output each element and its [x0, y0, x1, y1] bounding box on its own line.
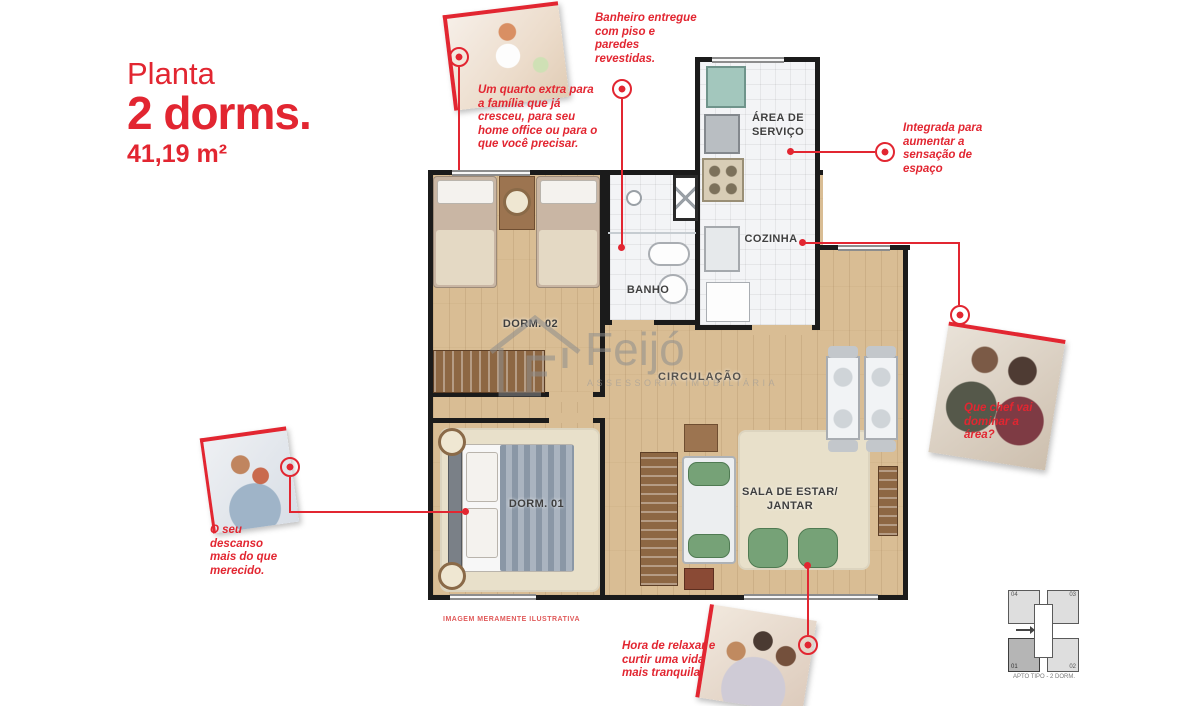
leader-line	[807, 567, 809, 635]
kitchen-sink	[704, 226, 740, 272]
leader-line	[802, 242, 960, 244]
storage-box	[684, 568, 714, 590]
toilet	[648, 242, 690, 266]
side-table	[684, 424, 718, 452]
leader-dot	[462, 508, 469, 515]
photo-couple-resting-in-bed	[200, 426, 300, 533]
dining-table	[826, 356, 860, 440]
room-label-service: ÁREA DE SERVIÇO	[746, 112, 810, 140]
callout-marker-bathroom	[612, 79, 632, 99]
dining-chair	[866, 346, 896, 358]
title-kicker: Planta	[127, 58, 311, 89]
leader-line	[289, 511, 465, 513]
laundry-tank	[704, 114, 740, 154]
annotation-kitchen: Que chef vai dominar a área?	[964, 402, 1050, 443]
bedroom1-window	[450, 594, 536, 600]
planta-marketing-page: Planta 2 dorms. 41,19 m²	[0, 0, 1200, 706]
pillow	[437, 180, 494, 204]
annotation-bedroom1: O seu descanso mais do que merecido.	[210, 524, 290, 578]
dining-chair	[866, 440, 896, 452]
keyplan-core	[1034, 604, 1053, 658]
lamp	[438, 428, 466, 456]
pillow	[540, 180, 597, 204]
room-label-living: SALA DE ESTAR/ JANTAR	[736, 486, 844, 514]
leader-line	[289, 477, 291, 513]
lamp	[438, 562, 466, 590]
shower-head	[626, 190, 642, 206]
kitchen-opening-gap	[752, 325, 812, 335]
leader-dot	[804, 562, 811, 569]
armchair-pouf	[748, 528, 788, 568]
annotation-service: Integrada para aumentar a sensação de es…	[903, 122, 995, 176]
dining-chair	[828, 346, 858, 358]
watermark-tagline: ASSESSORIA IMOBILIÁRIA	[587, 378, 778, 388]
blanket	[539, 230, 597, 285]
watermark-name: Feijó	[585, 322, 685, 376]
duct-shaft	[673, 175, 698, 221]
house-logo-icon	[485, 308, 581, 400]
bedroom1-door-gap	[549, 413, 593, 423]
leader-line	[458, 67, 460, 170]
leader-line	[621, 99, 623, 247]
pillow	[466, 508, 498, 558]
callout-marker-kitchen	[950, 305, 970, 325]
page-title-block: Planta 2 dorms. 41,19 m²	[127, 58, 311, 170]
service-window	[712, 57, 784, 63]
blanket	[436, 230, 494, 285]
plan-outside-mask	[823, 162, 913, 247]
room-label-kitchen: COZINHA	[738, 233, 804, 247]
armchair-pouf	[798, 528, 838, 568]
dining-chair	[828, 440, 858, 452]
leader-dot	[799, 239, 806, 246]
annotation-bedroom2: Um quarto extra para a família que já cr…	[478, 84, 602, 152]
fridge	[706, 282, 750, 322]
keyplan: 04 03 01 02 APTO TIPO - 2 DORM.	[1008, 590, 1080, 686]
leader-dot	[787, 148, 794, 155]
stove	[702, 158, 744, 202]
sofa-cushion	[688, 462, 730, 486]
sofa-cushion	[688, 534, 730, 558]
callout-marker-living	[798, 635, 818, 655]
leader-dot	[618, 244, 625, 251]
living-window	[744, 594, 878, 600]
apartment-area: 41,19 m²	[127, 139, 311, 170]
tv-rack	[878, 466, 898, 536]
page-title: 2 dorms.	[127, 89, 311, 139]
keyplan-unit-label: 01	[1011, 664, 1018, 670]
room-label-bedroom1: DORM. 01	[494, 498, 579, 512]
keyplan-access-arrow-icon	[1030, 626, 1035, 634]
annotation-living: Hora de relaxar e curtir uma vida mais t…	[622, 640, 716, 681]
keyplan-unit-label: 04	[1011, 592, 1018, 598]
annotation-bathroom: Banheiro entregue com piso e paredes rev…	[595, 12, 697, 66]
pillow	[466, 452, 498, 502]
disclaimer-text: IMAGEM MERAMENTE ILUSTRATIVA	[443, 616, 580, 623]
living-top-window	[838, 245, 890, 251]
callout-marker-bedroom2	[449, 47, 469, 67]
dining-table	[864, 356, 898, 440]
photo-couple-cooking	[928, 322, 1065, 471]
hall-closet	[640, 452, 678, 586]
leader-line	[790, 151, 875, 153]
lamp	[503, 188, 531, 216]
keyplan-unit-label: 03	[1069, 592, 1076, 598]
keyplan-unit-label: 02	[1069, 664, 1076, 670]
keyplan-caption: APTO TIPO - 2 DORM.	[1008, 674, 1080, 680]
callout-marker-service	[875, 142, 895, 162]
headboard	[448, 440, 462, 576]
washing-machine	[706, 66, 746, 108]
callout-marker-bedroom1	[280, 457, 300, 477]
room-label-bathroom: BANHO	[616, 284, 680, 298]
leader-line	[958, 242, 960, 305]
